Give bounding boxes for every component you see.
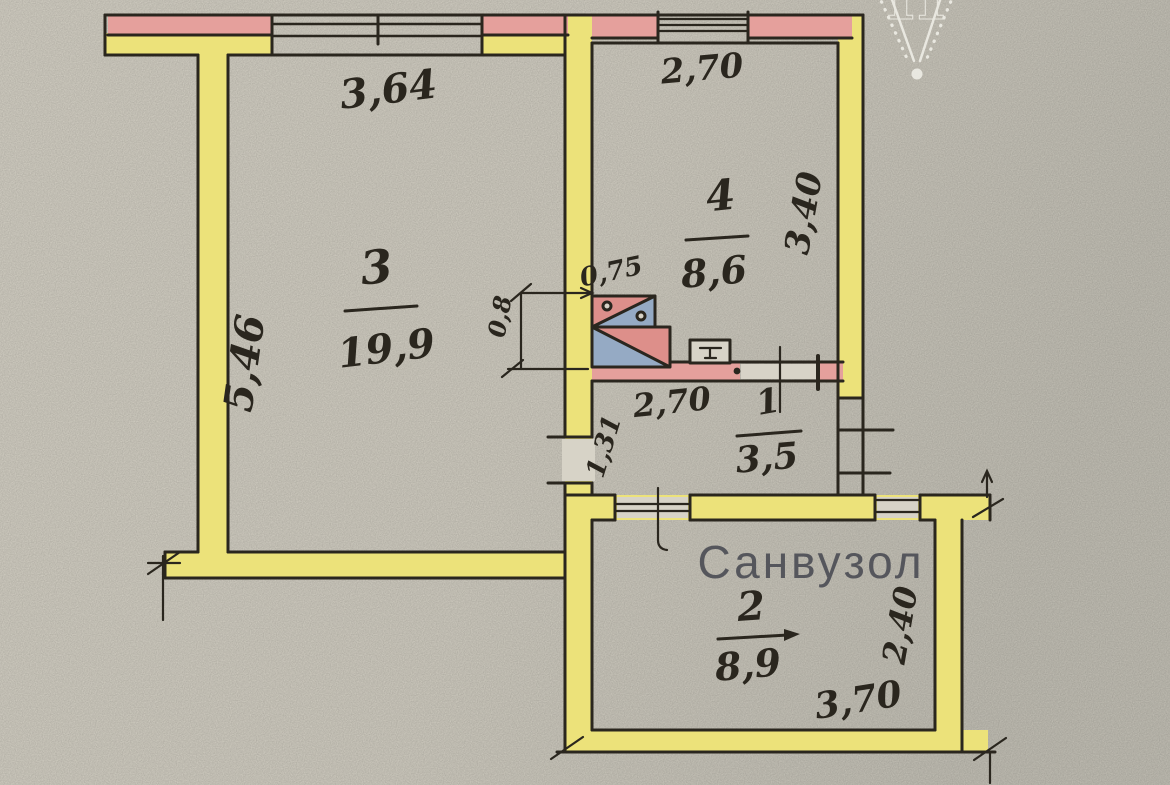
room4-number: 4: [703, 170, 737, 222]
bath-number: 2: [735, 582, 767, 631]
masonry-block-2: [482, 15, 568, 35]
masonry-block-3: [592, 15, 658, 38]
room3-number: 3: [358, 239, 395, 296]
watermark-dot: [912, 69, 923, 80]
room2-right-wall: [935, 513, 962, 752]
door-room2-gap: [617, 497, 688, 518]
room3-left-wall: [198, 55, 228, 578]
hall-area: 3,5: [734, 434, 800, 481]
vent-duct-hole-2: [637, 312, 645, 320]
masonry-block-1: [108, 15, 272, 35]
room3-bottom-wall: [165, 552, 592, 578]
hall-top-wall-strip-right: [820, 362, 843, 381]
bathroom-label: Санвузол: [697, 536, 924, 588]
vent-duct-hole-1: [603, 302, 611, 310]
room4-right-wall: [838, 15, 864, 398]
room4-area: 8,6: [678, 246, 749, 297]
central-wall: [565, 15, 592, 752]
masonry-block-4: [748, 15, 852, 38]
hall-door-jamb-dot: [734, 368, 741, 375]
bath-area: 8,9: [712, 639, 783, 690]
room2-bottom-wall: [565, 730, 988, 752]
floor-plan-page: 3,64 5,46 2,70 3,40 3 19,9 4 8,6 0,75 0,…: [0, 0, 1170, 785]
dim-room4-width: 2,70: [658, 45, 745, 92]
floor-plan-svg: 3,64 5,46 2,70 3,40 3 19,9 4 8,6 0,75 0,…: [0, 0, 1170, 785]
